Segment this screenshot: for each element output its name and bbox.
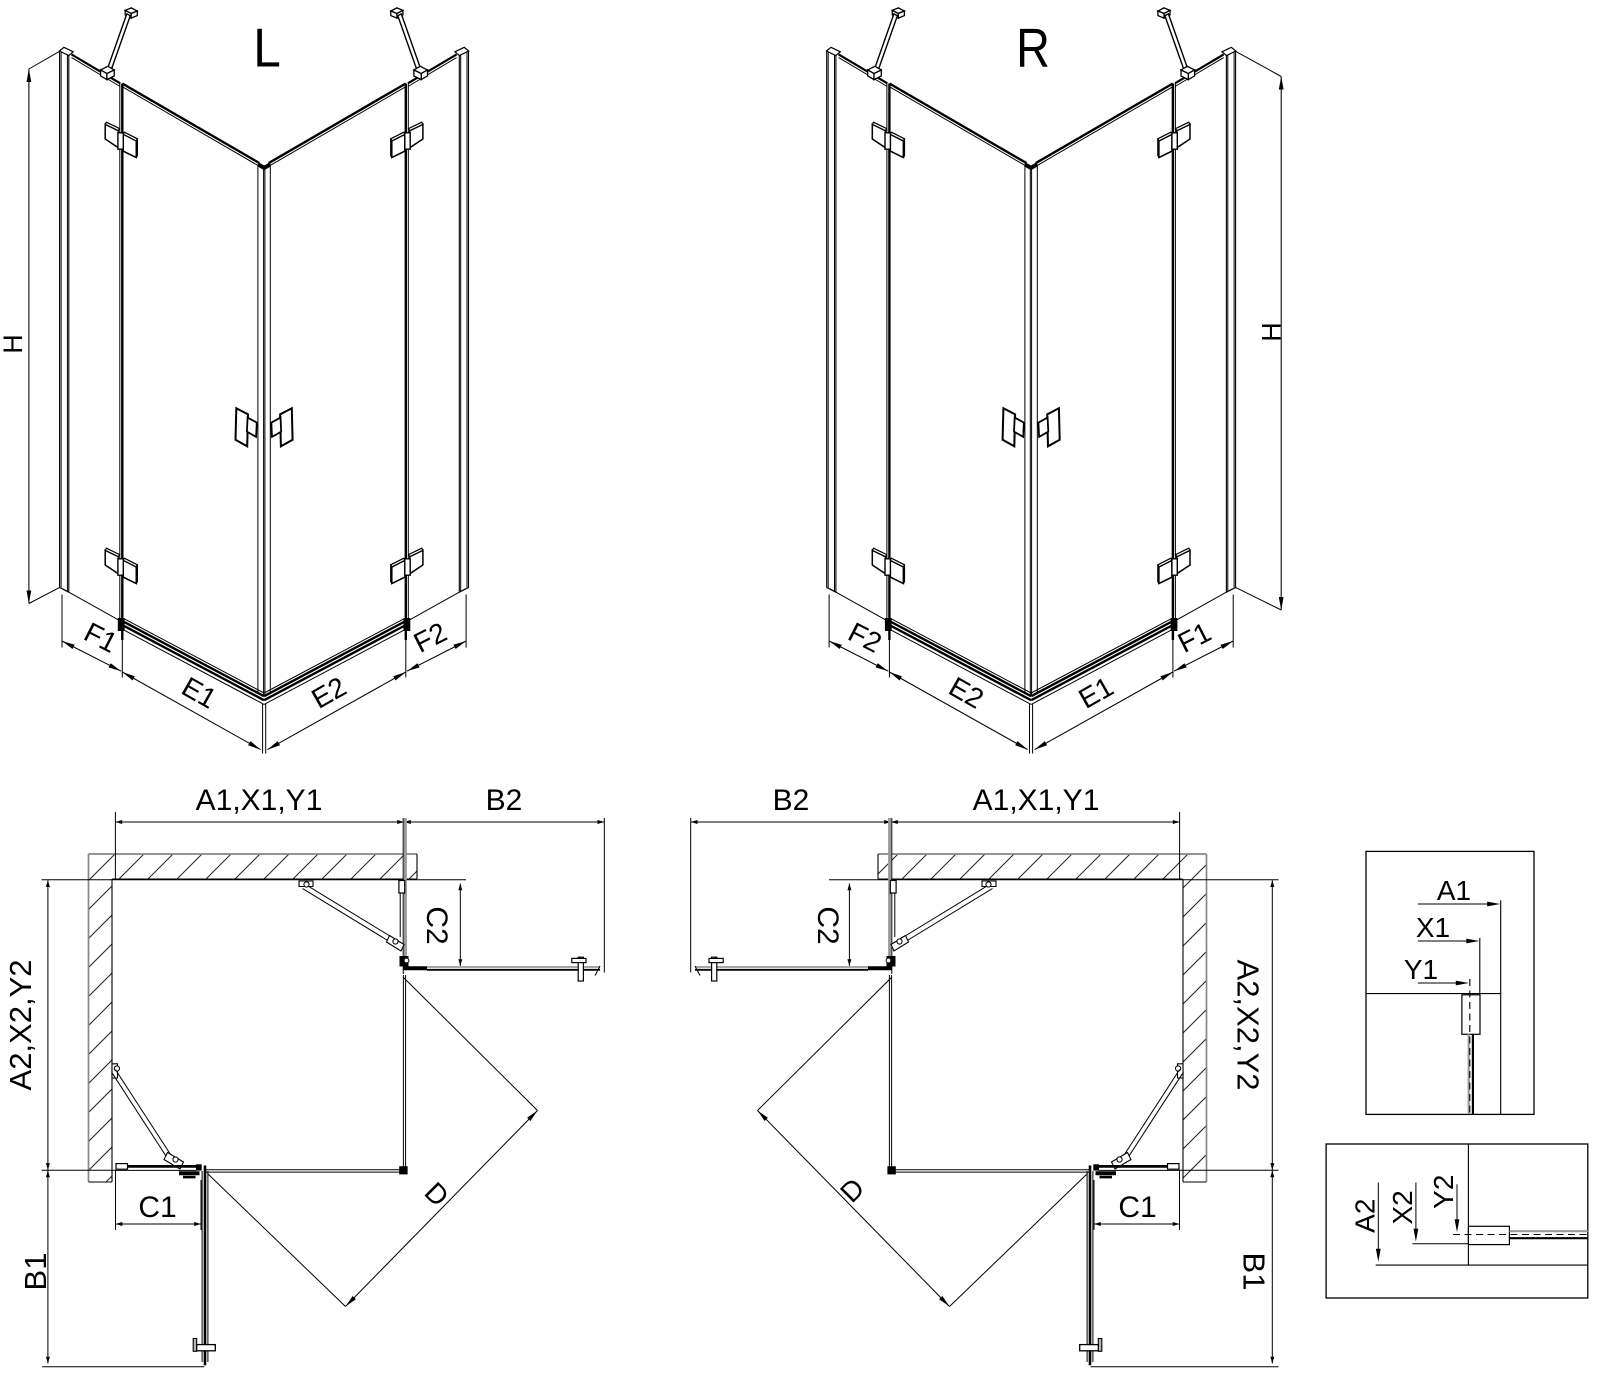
svg-text:L: L bbox=[253, 18, 281, 79]
svg-text:X1: X1 bbox=[1416, 912, 1450, 943]
svg-text:A1,X1,Y1: A1,X1,Y1 bbox=[196, 784, 323, 817]
svg-text:C2: C2 bbox=[811, 906, 844, 944]
svg-text:C1: C1 bbox=[1118, 1191, 1156, 1224]
svg-text:C1: C1 bbox=[138, 1191, 176, 1224]
svg-text:Y1: Y1 bbox=[1404, 954, 1438, 985]
svg-text:B2: B2 bbox=[486, 784, 523, 817]
svg-text:A1: A1 bbox=[1437, 875, 1471, 906]
svg-text:H: H bbox=[0, 334, 28, 354]
svg-text:X2: X2 bbox=[1387, 1190, 1418, 1224]
svg-text:A2: A2 bbox=[1350, 1199, 1381, 1233]
svg-text:Y2: Y2 bbox=[1428, 1175, 1459, 1209]
svg-text:B1: B1 bbox=[1237, 1253, 1272, 1291]
svg-text:C2: C2 bbox=[420, 906, 453, 944]
svg-text:A2,X2,Y2: A2,X2,Y2 bbox=[3, 960, 38, 1091]
svg-text:B1: B1 bbox=[18, 1253, 53, 1291]
svg-text:A1,X1,Y1: A1,X1,Y1 bbox=[973, 784, 1100, 817]
svg-text:A2,X2,Y2: A2,X2,Y2 bbox=[1231, 960, 1266, 1091]
svg-text:H: H bbox=[1257, 322, 1287, 342]
svg-text:R: R bbox=[1016, 17, 1050, 78]
svg-text:B2: B2 bbox=[773, 784, 810, 817]
